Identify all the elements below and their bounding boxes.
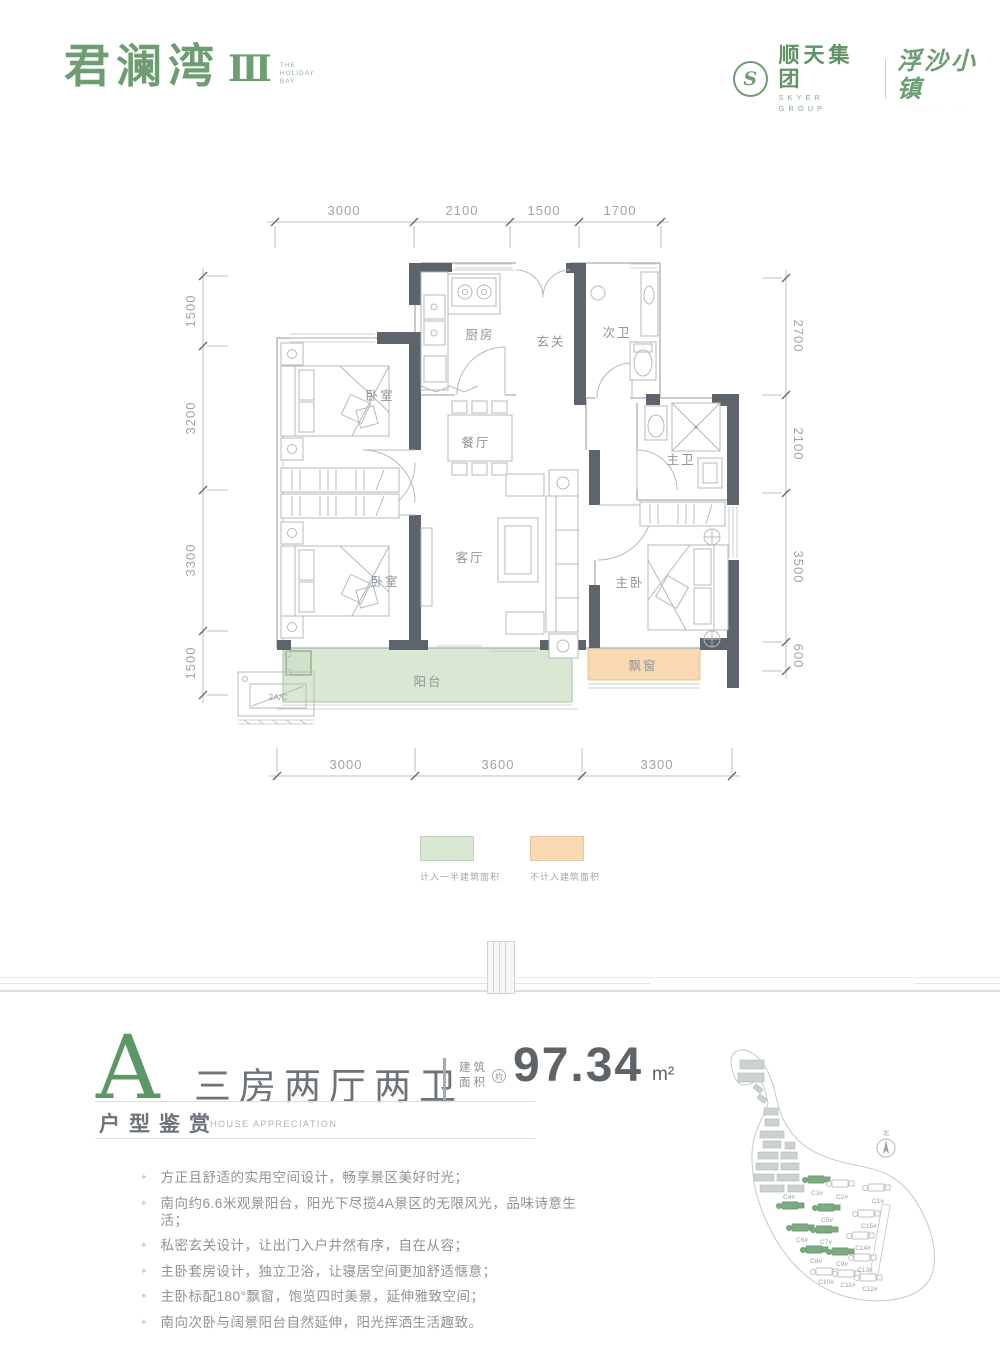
dim-top-4: 1700 <box>604 203 637 218</box>
dimensions-right: 2700 2100 3500 600 <box>762 270 806 679</box>
brand-subtitle-line: THE <box>280 62 315 70</box>
legend-item-excluded-area: 不计入建筑面积 <box>530 836 600 883</box>
compass-icon: 北 <box>877 1129 895 1157</box>
dim-right-3: 3500 <box>791 551 806 584</box>
dim-bottom-2: 3600 <box>482 757 515 772</box>
dimensions-left: 1500 3200 3300 1500 <box>183 268 228 703</box>
master-furniture <box>640 502 728 647</box>
dim-right-2: 2100 <box>791 428 806 461</box>
feature-list: ✦方正且舒适的实用空间设计，畅享景区美好时光； ✦南向约6.6米观景阳台，阳光下… <box>100 1169 600 1339</box>
area-label-line1: 建筑 <box>459 1061 488 1076</box>
dim-left-4: 1500 <box>183 647 198 680</box>
legend-label: 不计入建筑面积 <box>530 870 600 883</box>
svg-text:C11#: C11# <box>840 1282 855 1289</box>
svg-text:C2#: C2# <box>836 1194 848 1201</box>
dim-top-1: 3000 <box>328 203 361 218</box>
star-bullet-icon: ✦ <box>140 1237 148 1254</box>
section-title-en: HOUSE APPRECIATION <box>210 1119 337 1129</box>
dim-right-4: 600 <box>791 644 806 669</box>
legend-item-half-area: 计入一半建筑面积 <box>420 836 500 883</box>
developer-logos: S 顺天集团 SKYER GROUP 浮沙小镇 · · · · · · · · <box>733 44 1000 114</box>
svg-text:C7#: C7# <box>820 1239 832 1246</box>
svg-text:C6#: C6# <box>796 1237 808 1244</box>
summary-divider <box>443 1058 446 1100</box>
room-label-master-bath: 主卫 <box>666 453 695 467</box>
brand-subtitle: THE HOLIDAY BAY <box>280 62 315 86</box>
svg-text:C14#: C14# <box>855 1245 871 1252</box>
room-label-dining: 餐厅 <box>461 435 490 450</box>
feature-item: ✦主卧套房设计，独立卫浴，让寝居空间更加舒适惬意； <box>140 1263 600 1280</box>
legend-swatch-orange <box>530 836 584 861</box>
area-unit: m² <box>652 1064 674 1086</box>
legend: 计入一半建筑面积 不计入建筑面积 <box>420 836 600 883</box>
company-logo: 顺天集团 SKYER GROUP <box>779 44 874 114</box>
rule-line <box>95 1138 535 1139</box>
svg-text:C15#: C15# <box>861 1223 877 1230</box>
feature-item: ✦主卧标配180°飘窗，饱览四时美景，延伸雅致空间； <box>140 1288 600 1305</box>
svg-text:C1#: C1# <box>872 1198 884 1205</box>
dimensions-bottom: 3000 3600 3300 <box>269 748 740 780</box>
feature-item: ✦私密玄关设计，让出门入户井然有序，自在从容； <box>140 1237 600 1254</box>
legend-label: 计入一半建筑面积 <box>420 870 500 883</box>
svg-text:C13#: C13# <box>857 1267 873 1274</box>
room-label-bay-window: 飘窗 <box>628 659 657 673</box>
feature-item: ✦南向约6.6米观景阳台，阳光下尽揽4A景区的无限风光，品味诗意生活； <box>140 1195 600 1229</box>
dim-left-3: 3300 <box>183 544 198 577</box>
room-label-master: 主卧 <box>615 576 644 590</box>
svg-text:C4#: C4# <box>783 1194 795 1201</box>
rule-line <box>95 1101 535 1102</box>
svg-text:C5#: C5# <box>821 1217 833 1224</box>
svg-text:C8#: C8# <box>810 1258 822 1265</box>
master-bath-fixtures <box>645 403 722 488</box>
brand-phase-number: Ⅲ <box>228 36 272 102</box>
project-logo: 浮沙小镇 · · · · · · · · <box>897 47 1000 111</box>
dim-left-1: 1500 <box>183 295 198 328</box>
dim-top-2: 2100 <box>446 203 479 218</box>
room-label-bedroom2: 卧室 <box>370 574 399 589</box>
room-label-bath2: 次卫 <box>602 326 631 340</box>
living-furniture <box>421 470 578 658</box>
dim-left-2: 3200 <box>183 402 198 435</box>
star-bullet-icon: ✦ <box>140 1169 148 1186</box>
floor-plan: 2A/C 卧室 卧室 厨房 玄关 次卫 餐厅 主卫 客厅 主卧 阳台 飘窗 <box>160 195 810 795</box>
brand-subtitle-line: BAY <box>280 78 315 86</box>
skyer-group-icon: S <box>733 61 768 97</box>
area-label: 建筑 面积 约 <box>459 1061 506 1091</box>
room-label-balcony: 阳台 <box>413 674 442 689</box>
project-name: 浮沙小镇 <box>897 47 1000 103</box>
ac-unit-label: 2A/C <box>269 692 288 702</box>
star-bullet-icon: ✦ <box>140 1314 148 1331</box>
floorplan-poster: 君澜湾 Ⅲ THE HOLIDAY BAY S 顺天集团 SKYER GROUP… <box>0 0 1000 1356</box>
dim-top-3: 1500 <box>528 203 561 218</box>
star-bullet-icon: ✦ <box>140 1288 148 1305</box>
svg-text:C3#: C3# <box>811 1190 823 1197</box>
room-label-bedroom1: 卧室 <box>365 388 394 403</box>
approx-circle-icon: 约 <box>492 1069 506 1083</box>
svg-text:C10#: C10# <box>818 1279 834 1286</box>
svg-text:C12#: C12# <box>862 1286 878 1293</box>
section-divider-line <box>915 983 1000 984</box>
brand-subtitle-line: HOLIDAY <box>280 70 315 78</box>
dim-bottom-1: 3000 <box>330 757 363 772</box>
legend-swatch-green <box>420 836 474 861</box>
star-bullet-icon: ✦ <box>140 1263 148 1280</box>
logo-divider <box>885 59 886 99</box>
brand-name: 君澜湾 <box>64 36 220 96</box>
area-value: 97.34 <box>513 1038 643 1093</box>
star-bullet-icon: ✦ <box>140 1195 148 1212</box>
divider-ornament <box>487 941 515 994</box>
dim-right-1: 2700 <box>791 320 806 353</box>
area-label-line2: 面积 <box>459 1076 488 1091</box>
room-label-entry: 玄关 <box>536 334 565 349</box>
project-tagline: · · · · · · · · <box>897 103 1000 111</box>
dimensions-top: 3000 2100 1500 1700 <box>267 203 669 248</box>
site-map: C3# C2# C1# C4# C5# C15# C6# C7# C14# C8… <box>690 1030 970 1335</box>
company-name: 顺天集团 <box>779 44 874 92</box>
dim-bottom-3: 3300 <box>641 757 674 772</box>
svg-text:C9#: C9# <box>836 1261 848 1268</box>
feature-item: ✦南向次卧与阔景阳台自然延伸，阳光挥洒生活趣致。 <box>140 1314 600 1331</box>
section-title: 户型鉴赏 <box>99 1108 219 1138</box>
room-label-kitchen: 厨房 <box>465 327 494 342</box>
wardrobes <box>281 468 399 518</box>
section-divider-line <box>0 983 650 984</box>
feature-item: ✦方正且舒适的实用空间设计，畅享景区美好时光； <box>140 1169 600 1186</box>
svg-text:北: 北 <box>883 1129 890 1137</box>
room-label-living: 客厅 <box>455 550 484 565</box>
company-name-en: SKYER GROUP <box>779 92 874 114</box>
brand-logo: 君澜湾 Ⅲ THE HOLIDAY BAY <box>64 36 315 102</box>
